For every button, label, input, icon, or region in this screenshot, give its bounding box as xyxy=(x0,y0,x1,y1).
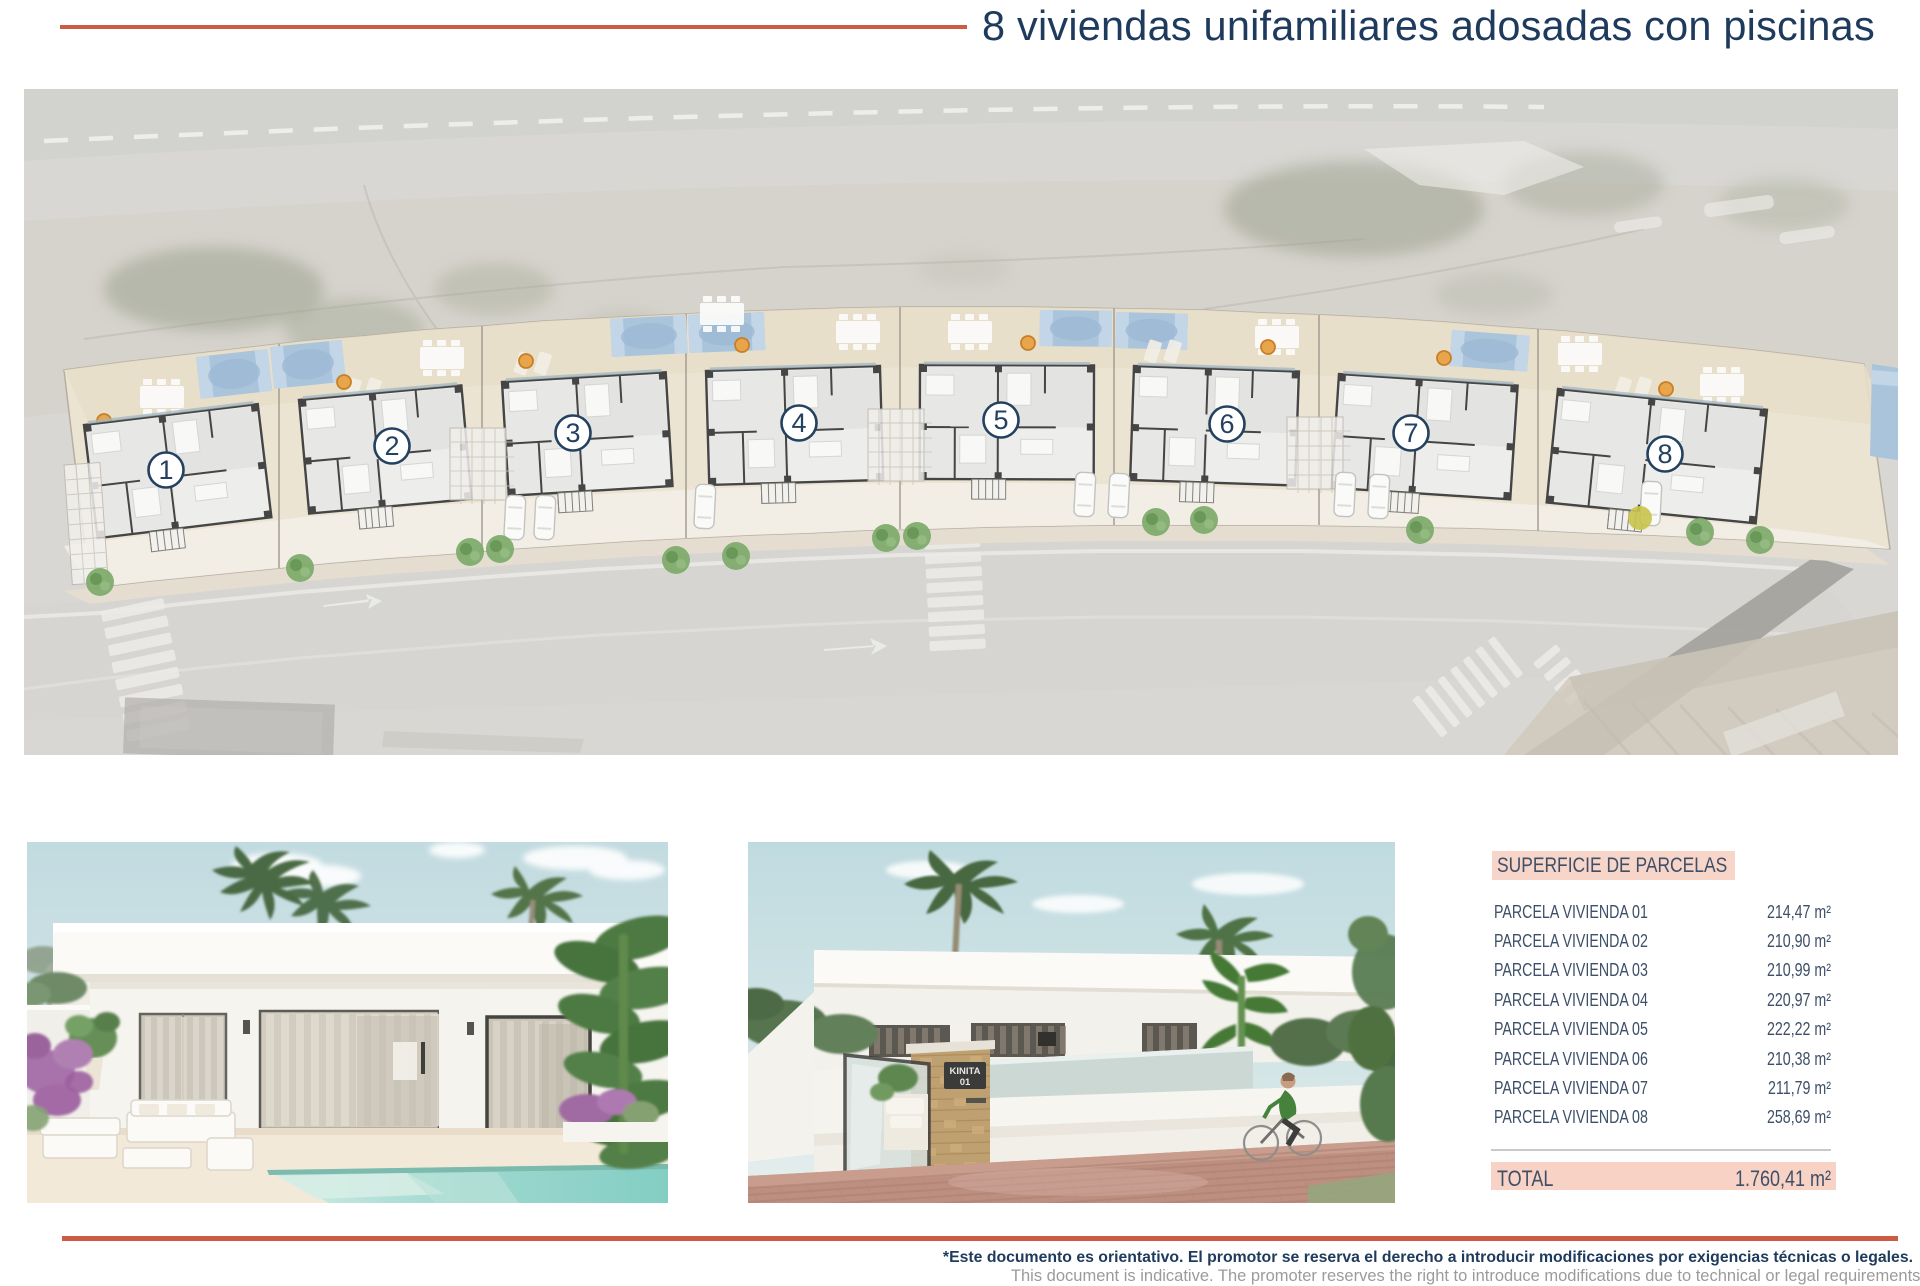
svg-text:01: 01 xyxy=(960,1077,971,1088)
svg-text:2: 2 xyxy=(384,431,399,461)
svg-text:1: 1 xyxy=(158,455,173,485)
svg-text:3: 3 xyxy=(565,418,580,448)
svg-text:KINITA: KINITA xyxy=(950,1066,981,1077)
svg-text:5: 5 xyxy=(993,405,1008,435)
svg-text:4: 4 xyxy=(791,408,806,438)
svg-text:7: 7 xyxy=(1403,418,1418,448)
svg-text:8: 8 xyxy=(1657,439,1672,469)
svg-text:6: 6 xyxy=(1219,409,1234,439)
